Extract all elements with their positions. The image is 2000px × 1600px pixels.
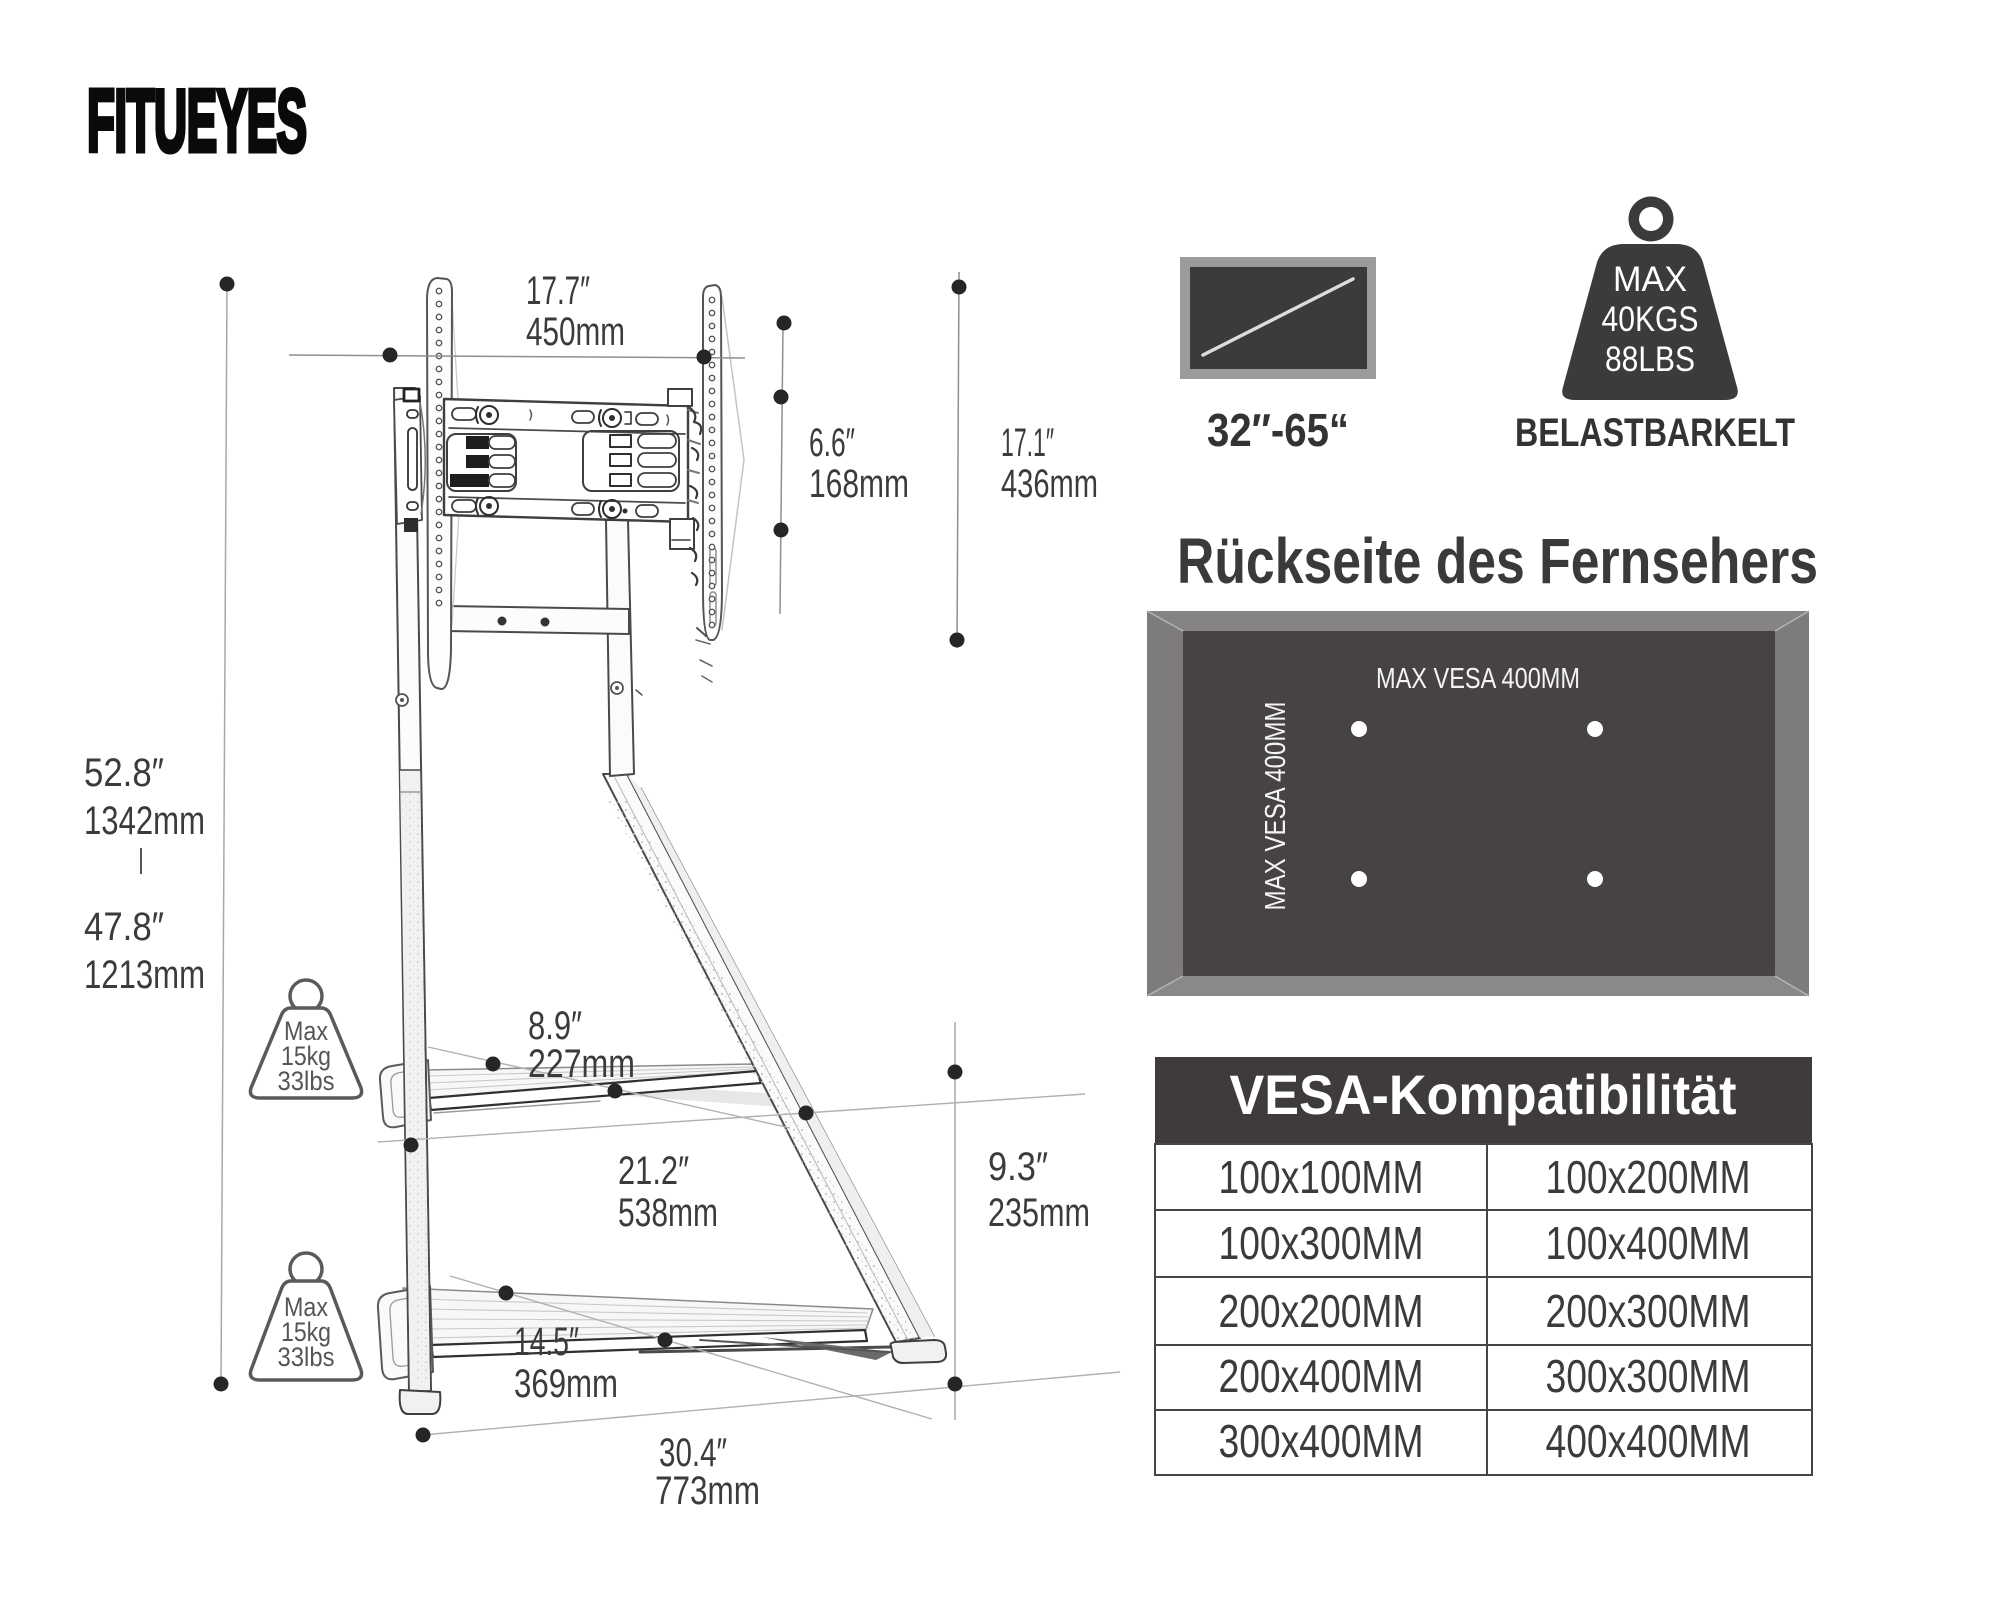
svg-text:17.1″: 17.1″: [1001, 421, 1054, 465]
svg-text:773mm: 773mm: [655, 1469, 760, 1513]
svg-text:FITUEYES: FITUEYES: [87, 72, 307, 170]
svg-text:40KGS: 40KGS: [1602, 300, 1699, 339]
svg-text:235mm: 235mm: [988, 1191, 1090, 1235]
svg-text:MAX: MAX: [1613, 260, 1687, 299]
svg-text:100x200MM: 100x200MM: [1546, 1151, 1751, 1203]
svg-text:227mm: 227mm: [528, 1042, 635, 1086]
svg-text:300x300MM: 300x300MM: [1546, 1350, 1751, 1402]
svg-text:100x400MM: 100x400MM: [1546, 1217, 1751, 1269]
svg-text:200x200MM: 200x200MM: [1219, 1285, 1424, 1337]
svg-text:168mm: 168mm: [809, 462, 909, 506]
svg-text:14.5″: 14.5″: [514, 1320, 579, 1364]
svg-text:21.2″: 21.2″: [618, 1149, 689, 1193]
svg-text:BELASTBARKELT: BELASTBARKELT: [1515, 411, 1795, 455]
svg-text:MAX VESA 400MM: MAX VESA 400MM: [1260, 702, 1292, 911]
svg-text:100x300MM: 100x300MM: [1219, 1217, 1424, 1269]
svg-text:33lbs: 33lbs: [278, 1066, 335, 1096]
svg-text:17.7″: 17.7″: [526, 269, 590, 313]
svg-text:369mm: 369mm: [514, 1362, 618, 1406]
svg-text:47.8″: 47.8″: [84, 905, 164, 949]
svg-text:538mm: 538mm: [618, 1191, 718, 1235]
svg-text:200x400MM: 200x400MM: [1219, 1350, 1424, 1402]
svg-text:88LBS: 88LBS: [1605, 340, 1695, 379]
svg-text:Rückseite des Fernsehers: Rückseite des Fernsehers: [1177, 525, 1818, 597]
svg-text:100x100MM: 100x100MM: [1219, 1151, 1424, 1203]
svg-text:32″-65“: 32″-65“: [1207, 404, 1349, 456]
svg-text:400x400MM: 400x400MM: [1546, 1415, 1751, 1467]
svg-text:9.3″: 9.3″: [988, 1145, 1048, 1189]
svg-text:52.8″: 52.8″: [84, 751, 164, 795]
svg-text:436mm: 436mm: [1001, 462, 1098, 506]
svg-text:MAX VESA 400MM: MAX VESA 400MM: [1376, 663, 1580, 695]
svg-text:VESA-Kompatibilität: VESA-Kompatibilität: [1230, 1063, 1737, 1126]
svg-text:6.6″: 6.6″: [809, 421, 855, 465]
svg-text:1213mm: 1213mm: [84, 953, 205, 997]
svg-text:200x300MM: 200x300MM: [1546, 1285, 1751, 1337]
svg-text:33lbs: 33lbs: [278, 1342, 335, 1372]
svg-text:1342mm: 1342mm: [84, 799, 205, 843]
svg-text:300x400MM: 300x400MM: [1219, 1415, 1424, 1467]
svg-text:450mm: 450mm: [526, 310, 625, 354]
